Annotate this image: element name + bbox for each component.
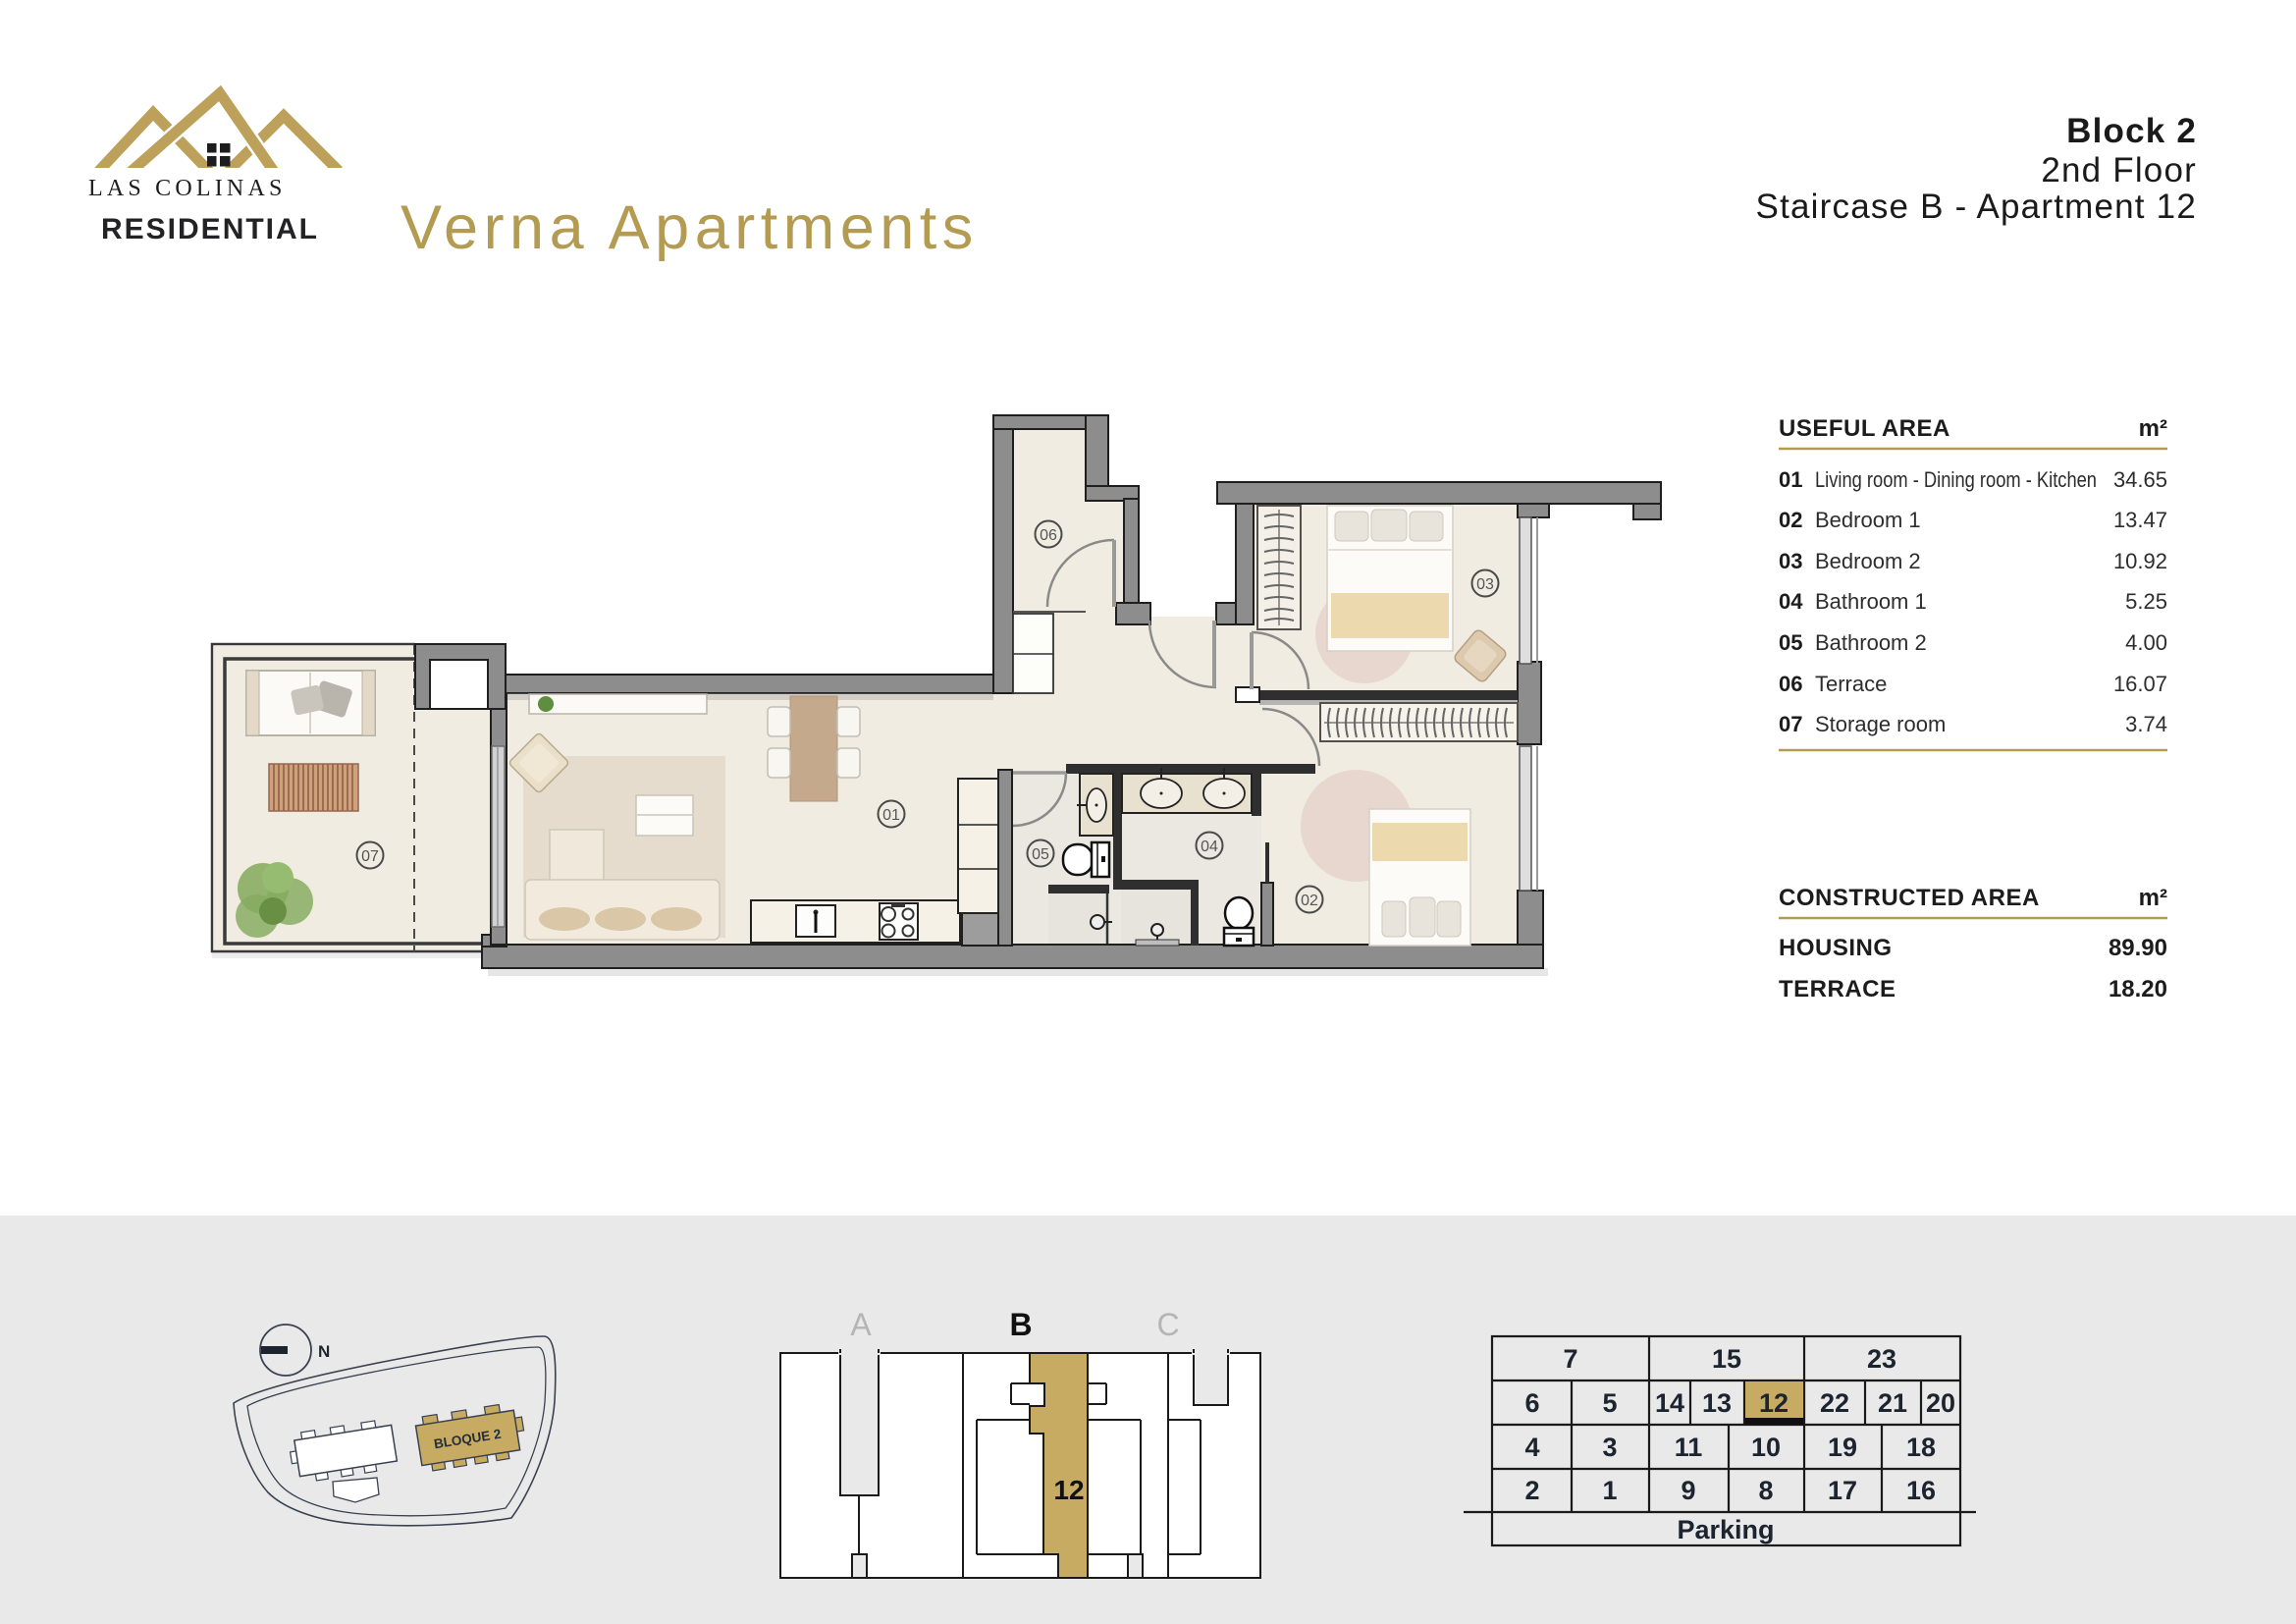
svg-text:12: 12 (1759, 1388, 1789, 1418)
svg-text:12: 12 (1053, 1475, 1084, 1505)
svg-text:2: 2 (1524, 1476, 1539, 1505)
svg-text:13.47: 13.47 (2113, 508, 2167, 532)
svg-text:TERRACE: TERRACE (1779, 976, 1896, 1002)
svg-text:01: 01 (882, 807, 900, 824)
svg-text:Bedroom 2: Bedroom 2 (1815, 549, 1921, 573)
svg-text:03: 03 (1779, 549, 1802, 573)
svg-text:07: 07 (361, 848, 379, 865)
svg-text:22: 22 (1820, 1388, 1849, 1418)
svg-text:6: 6 (1524, 1388, 1539, 1418)
svg-text:14: 14 (1655, 1388, 1684, 1418)
svg-text:HOUSING: HOUSING (1779, 935, 1893, 961)
svg-text:Block 2: Block 2 (2066, 112, 2197, 150)
svg-text:Bathroom 2: Bathroom 2 (1815, 630, 1927, 655)
svg-text:LAS COLINAS: LAS COLINAS (88, 176, 287, 201)
svg-text:16.07: 16.07 (2113, 672, 2167, 696)
svg-text:04: 04 (1201, 839, 1218, 855)
svg-text:06: 06 (1779, 672, 1802, 696)
svg-text:9: 9 (1681, 1476, 1695, 1505)
svg-text:2nd Floor: 2nd Floor (2041, 151, 2197, 189)
svg-text:1: 1 (1602, 1476, 1617, 1505)
svg-text:3.74: 3.74 (2125, 712, 2167, 736)
svg-text:Bathroom 1: Bathroom 1 (1815, 589, 1927, 614)
svg-text:Bedroom 1: Bedroom 1 (1815, 508, 1921, 532)
svg-text:m²: m² (2139, 885, 2167, 911)
svg-text:21: 21 (1878, 1388, 1907, 1418)
svg-text:B: B (1009, 1307, 1032, 1342)
svg-text:10: 10 (1751, 1433, 1781, 1462)
svg-text:Living room - Dining room - Ki: Living room - Dining room - Kitchen (1815, 467, 2097, 492)
svg-text:34.65: 34.65 (2113, 467, 2167, 492)
svg-text:CONSTRUCTED AREA: CONSTRUCTED AREA (1779, 885, 2040, 911)
svg-text:19: 19 (1828, 1433, 1857, 1462)
svg-text:07: 07 (1779, 712, 1802, 736)
svg-text:8: 8 (1758, 1476, 1773, 1505)
svg-text:5: 5 (1602, 1388, 1617, 1418)
svg-text:C: C (1156, 1307, 1179, 1342)
svg-text:18.20: 18.20 (2109, 976, 2167, 1002)
svg-text:Parking: Parking (1677, 1515, 1774, 1544)
svg-text:03: 03 (1476, 576, 1494, 593)
svg-text:A: A (850, 1307, 872, 1342)
svg-text:RESIDENTIAL: RESIDENTIAL (101, 213, 319, 245)
svg-text:17: 17 (1828, 1476, 1857, 1505)
svg-text:m²: m² (2139, 415, 2167, 442)
svg-text:13: 13 (1702, 1388, 1732, 1418)
svg-text:USEFUL AREA: USEFUL AREA (1779, 415, 1950, 442)
svg-text:N: N (318, 1342, 330, 1361)
svg-text:10.92: 10.92 (2113, 549, 2167, 573)
svg-text:Terrace: Terrace (1815, 672, 1887, 696)
svg-text:06: 06 (1040, 527, 1057, 544)
svg-text:89.90: 89.90 (2109, 935, 2167, 961)
svg-text:02: 02 (1301, 893, 1318, 909)
svg-text:01: 01 (1779, 467, 1802, 492)
svg-text:02: 02 (1779, 508, 1802, 532)
svg-text:20: 20 (1926, 1388, 1955, 1418)
svg-text:Verna Apartments: Verna Apartments (400, 193, 979, 262)
svg-text:5.25: 5.25 (2125, 589, 2167, 614)
svg-text:05: 05 (1032, 846, 1049, 863)
svg-text:05: 05 (1779, 630, 1802, 655)
svg-text:Storage room: Storage room (1815, 712, 1946, 736)
svg-text:18: 18 (1906, 1433, 1936, 1462)
svg-text:Staircase B - Apartment 12: Staircase B - Apartment 12 (1756, 188, 2197, 226)
svg-text:4: 4 (1524, 1433, 1539, 1462)
svg-text:3: 3 (1602, 1433, 1617, 1462)
svg-text:11: 11 (1675, 1433, 1703, 1462)
svg-text:15: 15 (1712, 1344, 1741, 1374)
svg-text:16: 16 (1906, 1476, 1936, 1505)
svg-text:7: 7 (1563, 1344, 1577, 1374)
svg-text:4.00: 4.00 (2125, 630, 2167, 655)
svg-text:23: 23 (1867, 1344, 1896, 1374)
svg-text:04: 04 (1779, 589, 1803, 614)
